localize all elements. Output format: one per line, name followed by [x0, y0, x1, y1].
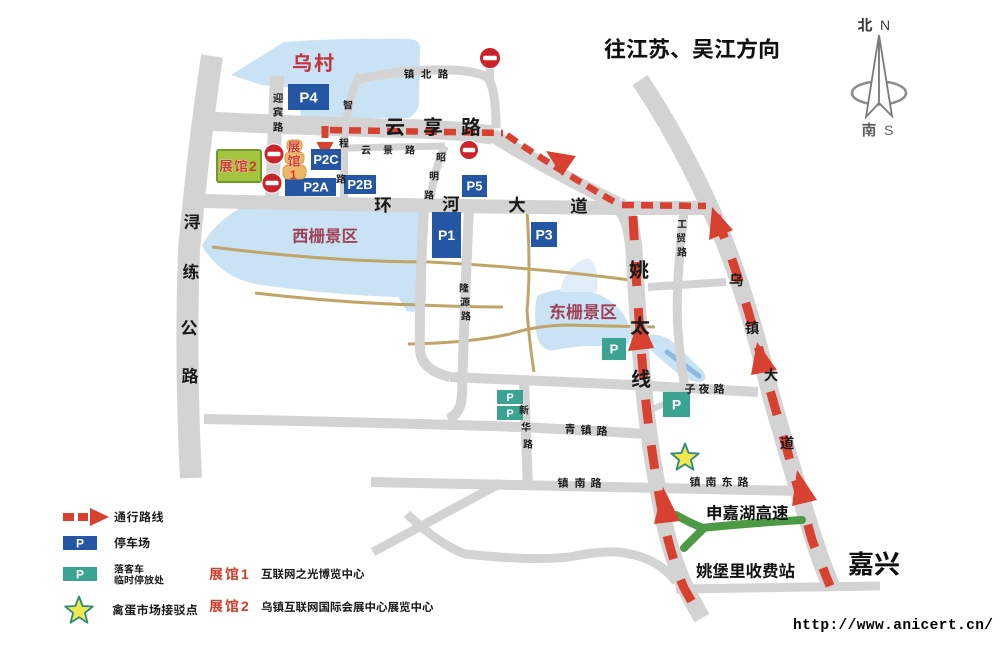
- svg-text:P: P: [672, 397, 681, 413]
- svg-text:P: P: [610, 342, 619, 357]
- svg-text:2: 2: [249, 158, 257, 174]
- svg-text:P2B: P2B: [347, 177, 372, 192]
- svg-text:P3: P3: [535, 227, 552, 243]
- svg-text:P2A: P2A: [303, 180, 329, 195]
- svg-text:1: 1: [241, 566, 249, 582]
- svg-text:P: P: [506, 408, 513, 420]
- svg-text:P: P: [76, 537, 84, 551]
- svg-text:1: 1: [290, 168, 297, 182]
- svg-text:2: 2: [241, 598, 249, 614]
- svg-text:P: P: [76, 568, 84, 582]
- svg-text:http://www.anicert.cn/: http://www.anicert.cn/: [793, 618, 993, 634]
- svg-text:N: N: [880, 17, 890, 33]
- svg-text:S: S: [884, 122, 893, 138]
- svg-text:P5: P5: [467, 179, 483, 194]
- svg-text:P4: P4: [299, 89, 318, 106]
- svg-text:P1: P1: [438, 227, 455, 243]
- svg-text:P: P: [506, 392, 513, 404]
- svg-text:P2C: P2C: [313, 152, 339, 167]
